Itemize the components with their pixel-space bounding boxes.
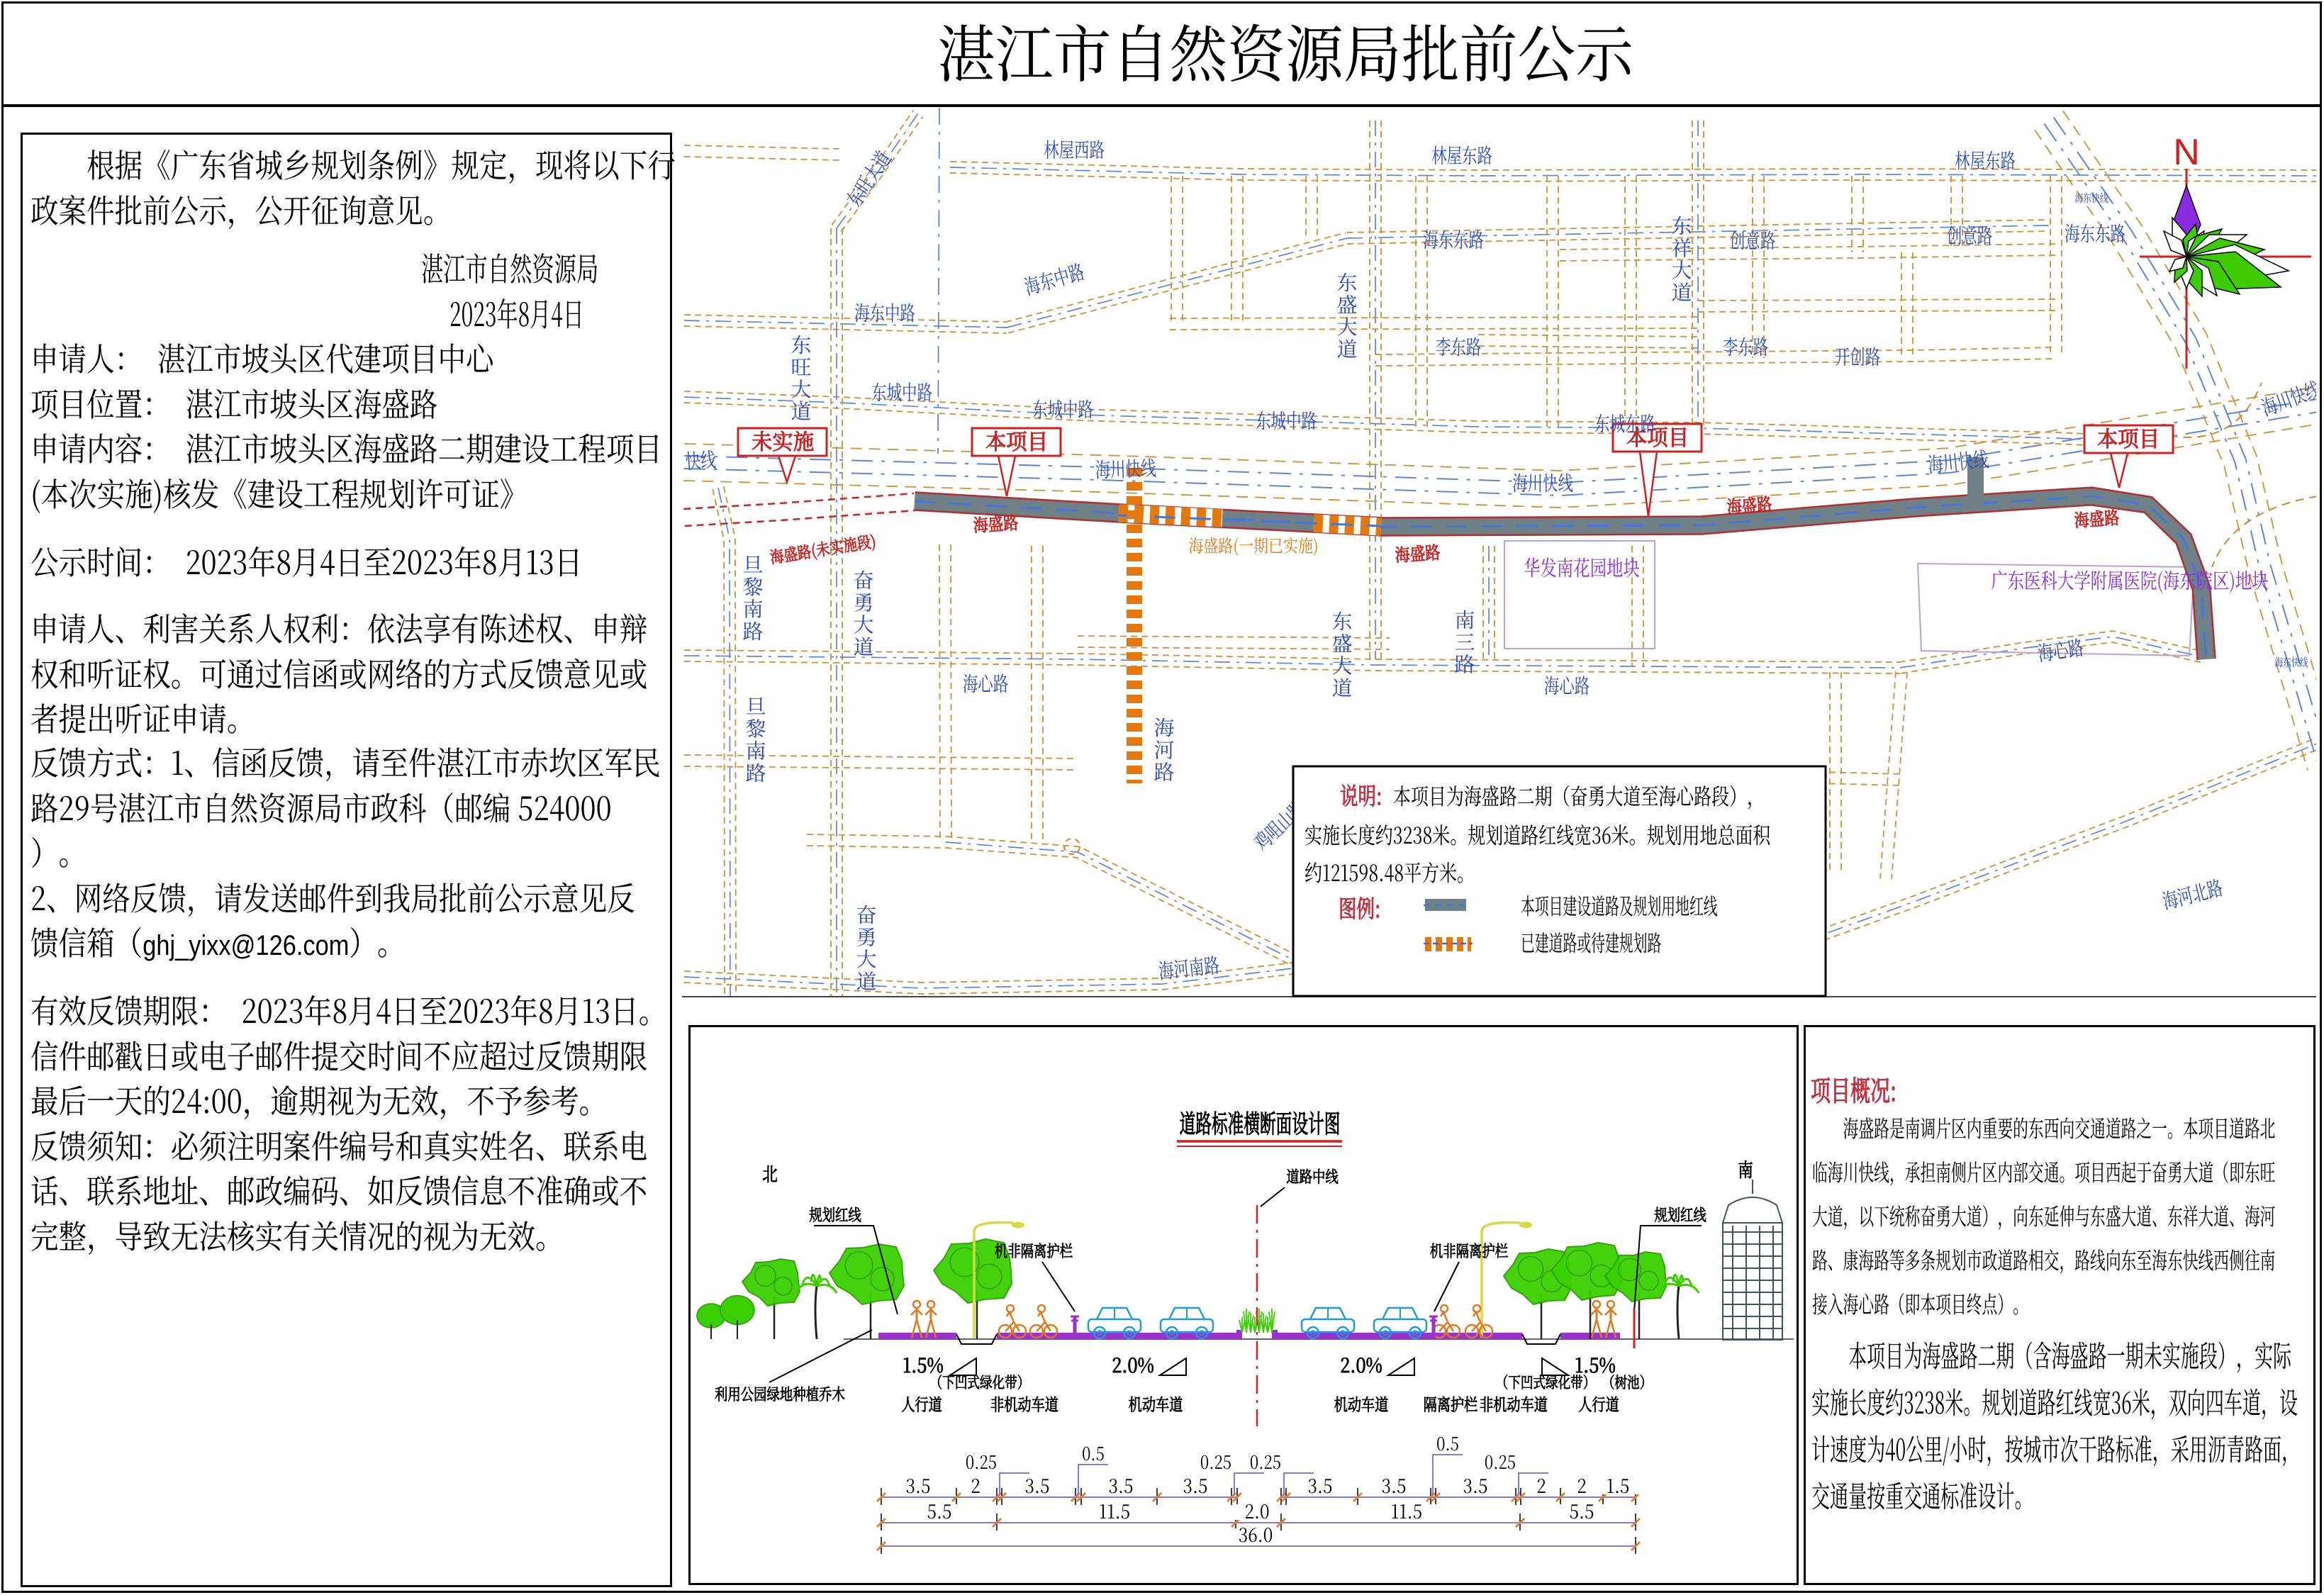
svg-text:2.0%: 2.0% [1340,1349,1382,1378]
svg-text:0.25: 0.25 [1250,1448,1281,1474]
svg-text:3.5: 3.5 [1307,1472,1332,1499]
svg-text:0.25: 0.25 [1200,1448,1231,1474]
svg-text:5.5: 5.5 [1569,1497,1594,1525]
svg-text:0.25: 0.25 [966,1448,997,1474]
svg-text:道路中线: 道路中线 [1286,1163,1339,1187]
svg-text:3.5: 3.5 [1024,1472,1049,1499]
svg-text:南: 南 [1738,1155,1753,1182]
svg-text:规划红线: 规划红线 [1654,1202,1706,1225]
svg-text:利用公园绿地种植乔木: 利用公园绿地种植乔木 [714,1381,845,1404]
svg-text:北: 北 [762,1159,778,1187]
svg-text:0.5: 0.5 [1436,1429,1459,1456]
svg-text:机非隔离护栏: 机非隔离护栏 [1430,1238,1508,1261]
svg-text:0.25: 0.25 [1485,1448,1516,1474]
svg-text:机动车道: 机动车道 [1129,1392,1183,1416]
svg-text:道路标准横断面设计图: 道路标准横断面设计图 [1180,1103,1341,1141]
svg-text:3.5: 3.5 [1381,1472,1406,1499]
svg-text:隔离护栏: 隔离护栏 [1424,1392,1478,1416]
svg-text:2: 2 [1577,1472,1587,1499]
svg-text:机非隔离护栏: 机非隔离护栏 [995,1238,1073,1261]
svg-text:规划红线: 规划红线 [809,1202,861,1225]
svg-text:3.5: 3.5 [1108,1472,1133,1499]
svg-text:人行道: 人行道 [1578,1392,1619,1416]
svg-text:3.5: 3.5 [1463,1472,1487,1499]
svg-text:11.5: 11.5 [1391,1497,1422,1525]
svg-text:1.5: 1.5 [1607,1472,1630,1499]
svg-text:非机动车道: 非机动车道 [990,1392,1058,1416]
svg-text:非机动车道: 非机动车道 [1480,1392,1548,1416]
svg-text:机动车道: 机动车道 [1334,1392,1389,1416]
svg-text:11.5: 11.5 [1099,1497,1130,1525]
svg-text:5.5: 5.5 [927,1497,951,1525]
svg-text:（下凹式绿化带）: （下凹式绿化带） [1496,1370,1596,1393]
svg-text:0.5: 0.5 [1082,1439,1105,1466]
svg-text:2.0%: 2.0% [1112,1349,1154,1378]
svg-text:（下凹式绿化带）: （下凹式绿化带） [930,1370,1030,1393]
svg-text:2: 2 [1536,1472,1546,1499]
svg-text:36.0: 36.0 [1239,1521,1273,1548]
svg-text:3.5: 3.5 [905,1472,930,1499]
svg-text:（树池）: （树池） [1602,1370,1652,1393]
svg-text:人行道: 人行道 [901,1392,942,1416]
svg-text:2: 2 [971,1472,981,1499]
svg-text:3.5: 3.5 [1183,1472,1207,1499]
